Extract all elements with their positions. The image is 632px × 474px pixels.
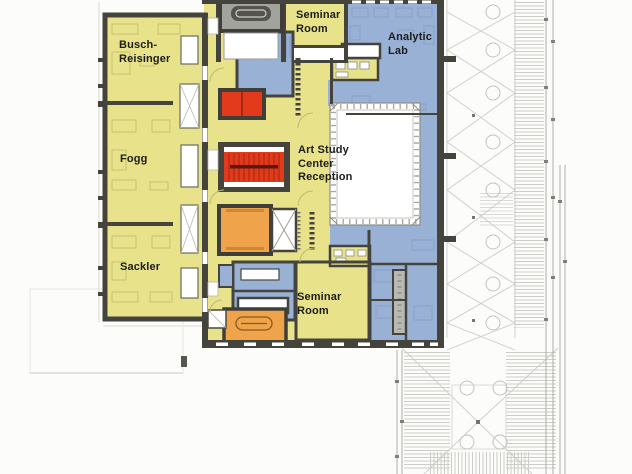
label-seminar-room-bottom: Seminar Room xyxy=(297,291,341,318)
floor-plan-canvas: Busch- Reisinger Fogg Sackler Seminar Ro… xyxy=(0,0,632,474)
label-busch-reisinger: Busch- Reisinger xyxy=(119,39,170,66)
label-analytic-lab: Analytic Lab xyxy=(388,31,432,58)
site-mark xyxy=(181,356,187,367)
label-seminar-room-top: Seminar Room xyxy=(296,9,340,36)
label-line: Sackler xyxy=(120,261,160,275)
top-stair-block xyxy=(216,0,286,62)
orange-elevator xyxy=(219,206,299,254)
red-elevator xyxy=(220,90,264,118)
floor-plan-drawing xyxy=(0,0,632,474)
label-line: Analytic xyxy=(388,31,432,45)
label-line: Lab xyxy=(388,45,432,59)
label-line: Reisinger xyxy=(119,53,170,67)
label-line: Art Study xyxy=(298,144,353,158)
gray-service-room xyxy=(393,270,406,334)
label-line: Seminar xyxy=(296,9,340,23)
label-line: Reception xyxy=(298,171,353,185)
label-line: Busch- xyxy=(119,39,170,53)
red-stair xyxy=(218,142,290,192)
label-line: Center xyxy=(298,158,353,172)
label-line: Seminar xyxy=(297,291,341,305)
label-sackler: Sackler xyxy=(120,261,160,275)
label-line: Fogg xyxy=(120,153,147,167)
label-fogg: Fogg xyxy=(120,153,147,167)
bridge-corridor xyxy=(294,48,346,60)
label-art-study-center: Art Study Center Reception xyxy=(298,144,353,185)
label-line: Room xyxy=(296,23,340,37)
label-line: Room xyxy=(297,305,341,319)
